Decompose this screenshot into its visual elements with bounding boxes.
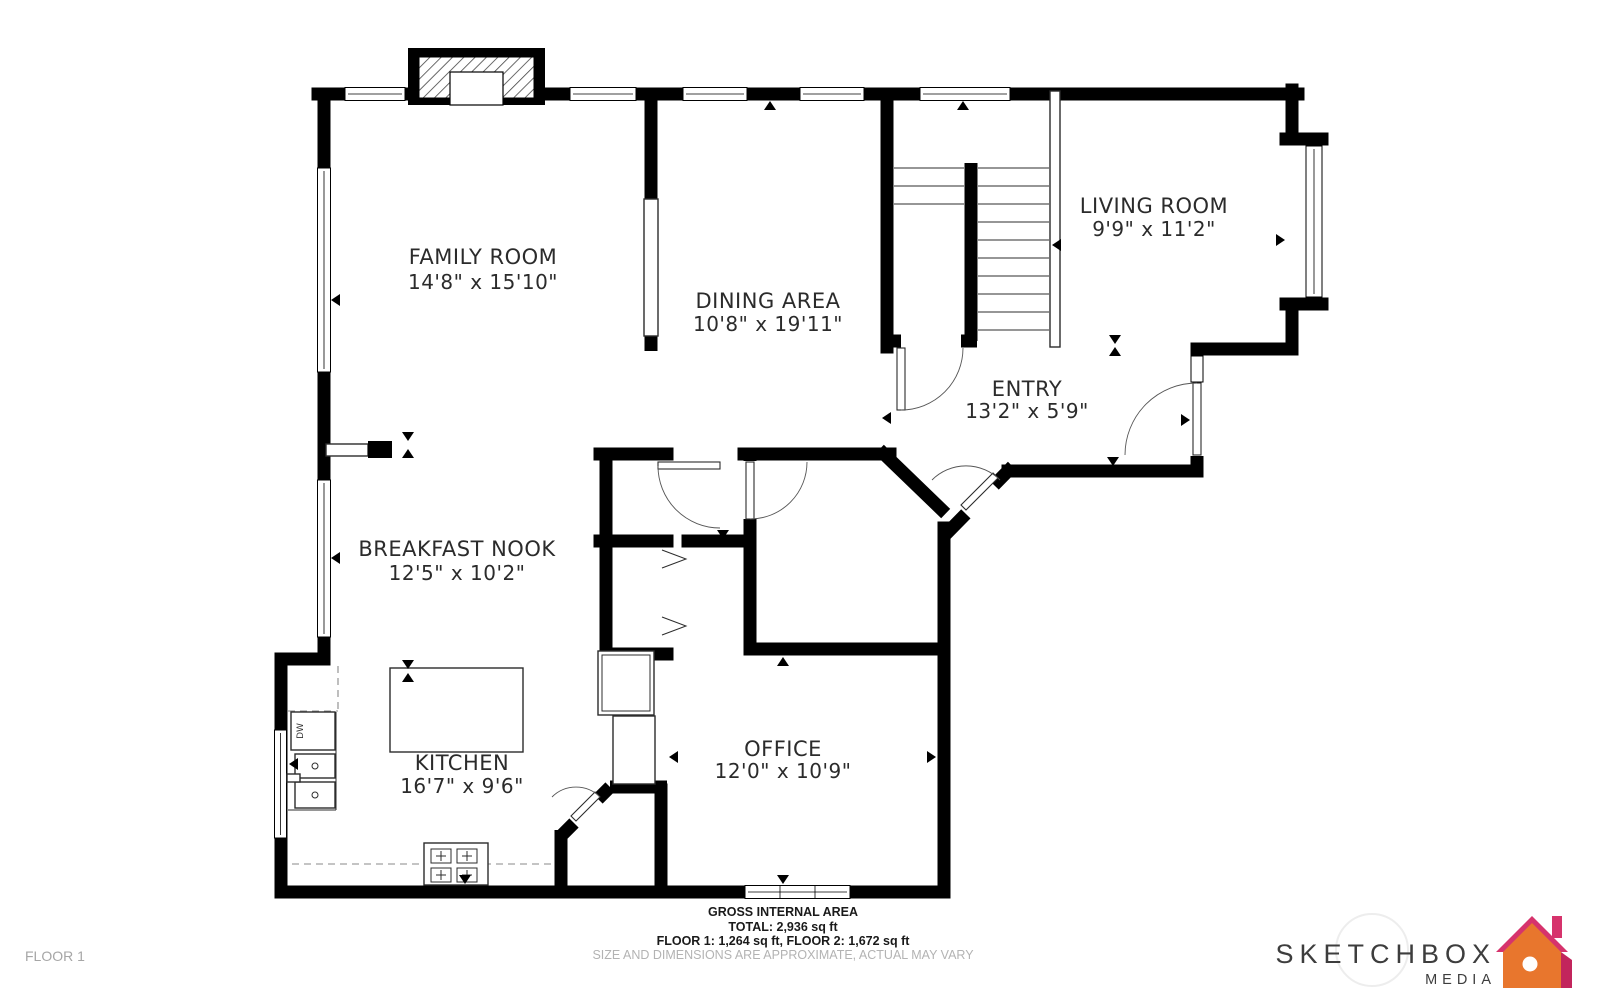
door-stair-closet xyxy=(897,348,963,410)
window-office xyxy=(745,886,850,899)
disclaimer: SIZE AND DIMENSIONS ARE APPROXIMATE, ACT… xyxy=(592,948,974,962)
svg-text:13'2" x 5'9": 13'2" x 5'9" xyxy=(965,399,1089,423)
window-top-2 xyxy=(570,88,636,101)
dishwasher-label: DW xyxy=(296,723,306,739)
closet-bifold-chevrons xyxy=(662,550,686,635)
knee-wall xyxy=(326,444,368,456)
room-label-entry: ENTRY 13'2" x 5'9" xyxy=(965,377,1089,423)
door-hall-closet xyxy=(658,462,720,528)
room-label-living-room: LIVING ROOM 9'9" x 11'2" xyxy=(1080,194,1228,241)
room-label-breakfast-nook: BREAKFAST NOOK 12'5" x 10'2" xyxy=(358,537,556,585)
cased-opening xyxy=(644,199,658,336)
total-area: TOTAL: 2,936 sq ft xyxy=(728,920,838,934)
svg-text:9'9" x 11'2": 9'9" x 11'2" xyxy=(1092,217,1216,241)
window-kitchen xyxy=(275,730,287,838)
window-bay xyxy=(1306,146,1322,297)
floorplan-drawing: FAMILY ROOM 14'8" x 15'10" DINING AREA 1… xyxy=(0,0,1600,999)
svg-text:14'8" x 15'10": 14'8" x 15'10" xyxy=(408,270,558,294)
window-top-4 xyxy=(800,88,864,101)
floor-areas: FLOOR 1: 1,264 sq ft, FLOOR 2: 1,672 sq … xyxy=(657,934,911,948)
room-label-office: OFFICE 12'0" x 10'9" xyxy=(715,737,852,783)
stove xyxy=(424,843,488,885)
svg-text:ENTRY: ENTRY xyxy=(992,377,1062,401)
brand-logo: SKETCHBOX MEDIA xyxy=(1275,914,1572,988)
svg-text:LIVING ROOM: LIVING ROOM xyxy=(1080,194,1228,218)
fireplace xyxy=(408,48,545,105)
window-top-1 xyxy=(345,88,405,101)
door-kitchen-angled xyxy=(552,787,600,821)
svg-text:10'8" x 19'11": 10'8" x 19'11" xyxy=(693,312,843,336)
brand-house-icon xyxy=(1496,916,1572,988)
knee-wall-cap xyxy=(368,441,392,458)
floorplan-page: FAMILY ROOM 14'8" x 15'10" DINING AREA 1… xyxy=(0,0,1600,999)
svg-text:16'7" x 9'6": 16'7" x 9'6" xyxy=(400,774,524,798)
house-door-circle xyxy=(1523,957,1538,972)
faucet xyxy=(287,774,300,782)
counter xyxy=(613,716,655,784)
room-label-kitchen: KITCHEN 16'7" x 9'6" xyxy=(400,751,524,798)
svg-text:BREAKFAST NOOK: BREAKFAST NOOK xyxy=(358,537,556,561)
floor-number-label: FLOOR 1 xyxy=(25,948,85,964)
window-stairs xyxy=(920,88,1010,101)
svg-text:KITCHEN: KITCHEN xyxy=(415,751,510,775)
window-top-3 xyxy=(683,88,747,101)
window-left-2 xyxy=(318,480,331,637)
svg-text:12'0" x 10'9": 12'0" x 10'9" xyxy=(715,759,852,783)
svg-text:DINING AREA: DINING AREA xyxy=(695,289,840,313)
window-left-1 xyxy=(318,168,331,372)
window-entry-sidelight xyxy=(1191,356,1203,382)
svg-text:OFFICE: OFFICE xyxy=(744,737,822,761)
svg-text:FAMILY ROOM: FAMILY ROOM xyxy=(409,245,558,269)
footer: GROSS INTERNAL AREA TOTAL: 2,936 sq ft F… xyxy=(25,905,974,964)
brand-name: SKETCHBOX xyxy=(1275,939,1496,969)
gross-area-title: GROSS INTERNAL AREA xyxy=(708,905,858,919)
room-label-family-room: FAMILY ROOM 14'8" x 15'10" xyxy=(408,245,558,294)
stair-rail xyxy=(1050,91,1060,347)
refrigerator xyxy=(598,651,654,715)
room-label-dining-area: DINING AREA 10'8" x 19'11" xyxy=(693,289,843,336)
svg-text:12'5" x 10'2": 12'5" x 10'2" xyxy=(389,561,526,585)
brand-subname: MEDIA xyxy=(1425,972,1496,988)
